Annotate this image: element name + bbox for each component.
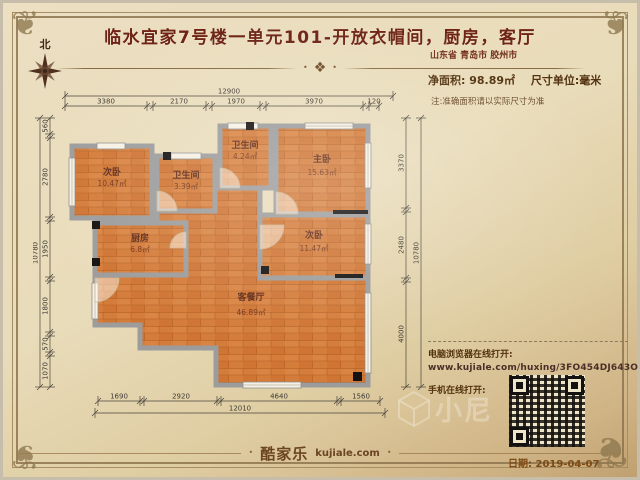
- dimension-label: 4640: [270, 393, 288, 401]
- dimension-label: 570: [42, 337, 50, 350]
- room-area: 11.47㎡: [300, 244, 329, 253]
- dimension-label: 3380: [97, 98, 115, 106]
- dimension-chain-right-total: 10780: [413, 115, 427, 390]
- net-area-line: 净面积: 98.89㎡ 尺寸单位:毫米: [428, 72, 601, 88]
- divider-ornament-icon: ❖: [314, 61, 327, 75]
- dimension-label: 1690: [110, 393, 128, 401]
- dimension-label: 2920: [172, 393, 190, 401]
- dimension-chain-left: 5602780195018005701070: [42, 115, 56, 390]
- dimension-label: 1970: [227, 98, 245, 106]
- dimension-label: 10780: [33, 242, 40, 264]
- page-title: 临水宜家7号楼一单元101-开放衣帽间，厨房，客厅: [3, 23, 637, 48]
- links-separator: [428, 341, 628, 342]
- dimension-label: 1560: [352, 393, 370, 401]
- area-note: 注:准确面积请以实际尺寸为准: [431, 95, 544, 107]
- brand-name: 酷家乐: [260, 443, 308, 464]
- qr-finder-icon: [565, 376, 584, 395]
- dimension-label: 12010: [229, 405, 251, 413]
- room-name: 客餐厅: [236, 291, 264, 303]
- dimension-label: 2170: [170, 98, 188, 106]
- dimension-label: 1800: [42, 297, 50, 315]
- dimension-label: 3370: [398, 154, 406, 172]
- room-name: 卫生间: [231, 139, 258, 151]
- net-area-value: 98.89㎡: [469, 74, 515, 87]
- north-label: 北: [27, 36, 63, 52]
- page-background: ❦ ❦ ❦ ❦ 临水宜家7号楼一单元101-开放衣帽间，厨房，客厅 山东省 青岛…: [3, 3, 637, 477]
- plan-url: www.kujiale.com/huxing/3FO454DJ643O: [428, 363, 628, 373]
- room-name: 卫生间: [172, 169, 199, 181]
- brand-domain: kujiale.com: [315, 448, 380, 459]
- qr-code: [509, 375, 585, 447]
- dimension-label: 3970: [305, 98, 323, 106]
- dimension-label: 2780: [42, 168, 50, 186]
- dimension-chain-top: 3380217019703970120: [62, 98, 382, 112]
- room-name: 厨房: [131, 232, 149, 244]
- dimension-chain-bottom-total: 12010: [92, 405, 388, 419]
- room-name: 次卧: [305, 229, 323, 241]
- dimension-label: 560: [42, 119, 50, 132]
- dimension-label: 12900: [218, 88, 240, 96]
- room-name: 次卧: [103, 166, 121, 178]
- dimension-label: 2480: [398, 236, 406, 254]
- room-name: 主卧: [313, 153, 331, 165]
- compass-rose-icon: [28, 52, 62, 90]
- floor-plan: 次卧 10.47㎡ 卫生间 3.39㎡ 卫生间 4.24㎡ 主卧 15.63㎡ …: [33, 88, 433, 418]
- room-area: 3.39㎡: [174, 182, 199, 191]
- dimension-label: 10780: [413, 242, 421, 264]
- unit-label: 尺寸单位:毫米: [531, 74, 601, 87]
- dimension-label: 4000: [398, 325, 406, 343]
- room-area: 6.8㎡: [130, 245, 150, 254]
- date-text: 日期: 2019-04-07: [508, 455, 599, 470]
- dimension-label: 1950: [42, 240, 50, 258]
- pc-open-label: 电脑浏览器在线打开:: [428, 347, 628, 360]
- dimension-chain-right: 337024804000: [398, 115, 412, 390]
- watermark-cube-icon: [397, 391, 431, 427]
- room-area: 4.24㎡: [233, 152, 258, 161]
- north-indicator: 北: [27, 36, 63, 94]
- dimension-label: 120: [367, 98, 380, 106]
- room-area: 46.89㎡: [237, 308, 266, 317]
- room-area: 10.47㎡: [98, 179, 127, 188]
- location-text: 山东省 青岛市 胶州市: [430, 48, 517, 61]
- dimension-label: 1070: [42, 362, 50, 380]
- net-area-label: 净面积:: [428, 74, 465, 87]
- qr-finder-icon: [510, 376, 529, 395]
- room-area: 15.63㎡: [308, 168, 337, 177]
